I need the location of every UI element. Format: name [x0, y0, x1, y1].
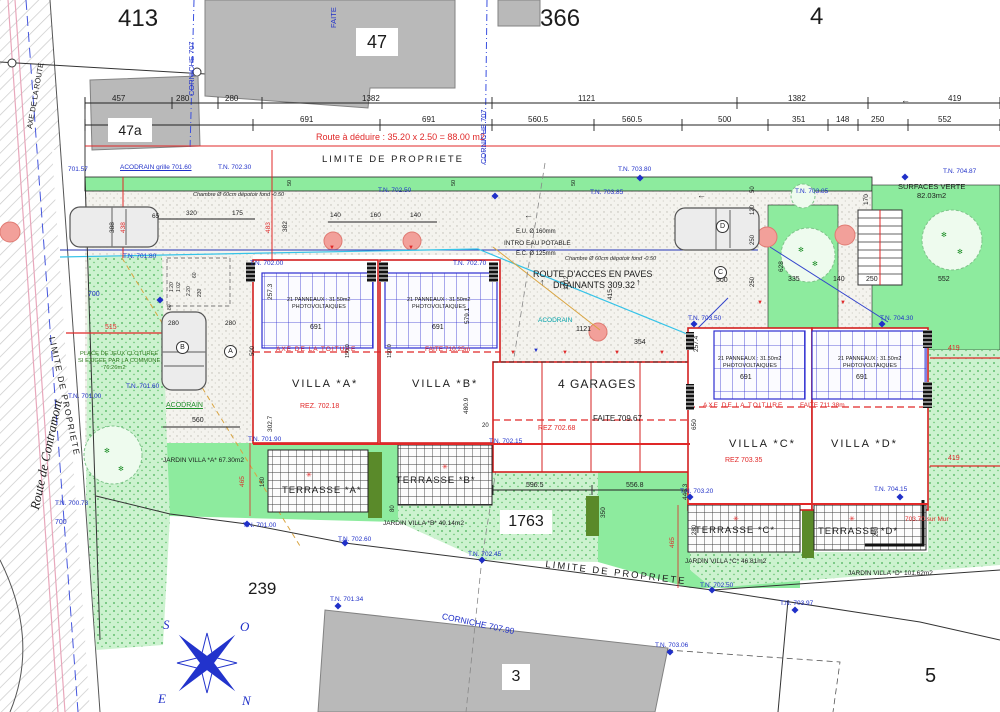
plan-label: ✻	[812, 261, 818, 268]
plan-label: 515	[105, 324, 117, 331]
plan-label: 438	[121, 222, 128, 233]
plan-label: T.N. 703.06	[655, 643, 688, 650]
plan-label: ▼	[408, 245, 414, 251]
hedge	[802, 506, 814, 558]
plan-label: ↑	[636, 278, 641, 287]
plan-label: 691	[740, 374, 752, 381]
plan-label: 382	[283, 221, 290, 232]
plan-label: 250	[750, 235, 756, 245]
plan-label: FAITE 710.25m	[425, 347, 470, 354]
plan-label: T.N. 702.45	[468, 552, 501, 559]
plan-label: T.N. 702.60	[338, 537, 371, 544]
plan-label: 21 PANNEAUX : 31.50m2	[287, 298, 350, 304]
plan-label: 1121	[576, 326, 591, 333]
plan-label: 351	[792, 116, 805, 124]
villa-d-label: VILLA *D*	[831, 439, 898, 451]
plan-label: 2.20	[187, 286, 192, 296]
plan-label: T.N. 704.30	[880, 316, 913, 323]
plan-label: T.N. 702.70	[453, 261, 486, 268]
tree	[84, 426, 142, 484]
villa-a-label: VILLA *A*	[292, 379, 358, 391]
plan-label: 354	[634, 339, 646, 346]
plan-label: PHOTOVOLTAIQUES	[292, 305, 346, 311]
parcel-413-label: 413	[118, 6, 158, 31]
plan-label: T.N. 704.87	[943, 169, 976, 176]
plan-label: T.N. 703.50	[688, 316, 721, 323]
plan-label: 150.0	[346, 344, 352, 358]
plan-label: 446.3	[683, 484, 690, 500]
hedge	[586, 496, 599, 536]
plan-label: 388	[110, 222, 117, 233]
plan-label: 703.70 sur Mur	[905, 517, 949, 524]
parcel-1763-label: 1763	[500, 510, 552, 534]
plan-label: 628	[779, 261, 786, 272]
plan-label: 419	[948, 95, 961, 103]
tree	[781, 228, 835, 282]
garages-rez: REZ 702.68	[538, 425, 575, 432]
plan-label: ▼	[840, 300, 846, 306]
plan-label: T.N. 702.50	[378, 188, 411, 195]
garages-label: 4 GARAGES	[558, 378, 636, 391]
plan-label: 50	[750, 186, 756, 193]
building-3-label: 3	[502, 664, 530, 690]
plan-label: ✻	[104, 448, 110, 455]
plan-label: E.C. Ø 125mm	[516, 251, 556, 257]
plan-label: ↑	[540, 278, 545, 287]
plan-label: 280	[176, 95, 189, 103]
plan-label: FAITE	[330, 7, 338, 28]
plan-label: 180	[260, 477, 266, 487]
plan-label: 250	[871, 116, 884, 124]
plan-label: 552	[938, 116, 951, 124]
plan-label: ←	[524, 211, 533, 220]
plan-label: AXE DE LA TOITURE	[703, 403, 783, 410]
plan-label: 691	[422, 116, 435, 124]
plan-label: T.N. 702.50	[700, 583, 733, 590]
property-limit-top: LIMITE DE PROPRIETE	[322, 155, 464, 165]
plan-label: 170	[864, 194, 871, 205]
garden-c-label: JARDIN VILLA *C* 46.81m2	[685, 559, 766, 566]
plan-label: 65	[152, 214, 159, 221]
plan-label: T.N. 701.00	[243, 523, 276, 530]
building-47-label: 47	[356, 28, 398, 56]
plan-label: ←	[697, 191, 706, 200]
plan-label: 700	[55, 519, 67, 526]
plan-label: 140	[330, 213, 341, 220]
plan-label: 280	[225, 321, 236, 328]
plan-label: 560.5	[622, 116, 642, 124]
plan-label: 21 PANNEAUX : 31.50m2	[838, 357, 901, 363]
plan-label: ✻	[118, 466, 124, 473]
plan-label: T.N. 702.15	[489, 439, 522, 446]
plan-label: ✻	[941, 232, 947, 239]
plan-label: 457	[112, 95, 125, 103]
plan-label: 320	[186, 211, 197, 218]
plan-label: Chambre Ø 60cm dépotoir fond -0.50	[193, 193, 284, 199]
plan-label: ✳	[849, 516, 855, 523]
plan-label: 419	[948, 455, 960, 462]
villa-b-label: VILLA *B*	[412, 379, 478, 391]
plan-label: CORNICHE 707	[480, 109, 488, 164]
plan-label: 160	[370, 213, 381, 220]
plan-label: T.N. 701.80	[123, 254, 156, 261]
plan-label: 691	[432, 324, 444, 331]
marker-b: B	[176, 341, 189, 354]
plan-label: 483	[266, 222, 273, 233]
plan-label: ▼	[329, 245, 335, 251]
plan-label: T.N. 700.73	[55, 501, 88, 508]
green-surface-label: SURFACES VERTE	[898, 183, 965, 191]
plan-label: 560.5	[528, 116, 548, 124]
plan-label: INTRO EAU POTABLE	[504, 241, 571, 248]
plan-label: 280	[168, 321, 179, 328]
hedge	[368, 452, 382, 518]
marker-c: C	[714, 266, 727, 279]
plan-label: ✳	[733, 516, 739, 523]
plan-label: 20	[482, 423, 489, 429]
plan-label: 257.3	[268, 284, 275, 300]
plan-label: SI EXIGEE PAR LA COMMUNE	[78, 358, 160, 364]
terrace-c-label: TERRASSE *C*	[695, 526, 775, 536]
parcel-4-label: 4	[810, 4, 823, 29]
plan-label: 140	[833, 276, 845, 283]
villa-c-rez: REZ 703.35	[725, 457, 762, 464]
plan-label: 500	[250, 346, 256, 356]
plan-label: 60	[193, 272, 198, 278]
plan-label: 250	[750, 277, 756, 287]
plan-label: E.U. Ø 160mm	[516, 229, 556, 235]
stairs	[858, 210, 902, 285]
compass-s: S	[163, 618, 170, 632]
plan-label: ▼	[533, 348, 539, 354]
plan-label: T.N. 702.30	[218, 165, 251, 172]
acodrain-label: ACODRAIN	[166, 402, 203, 409]
plan-label: T.N. 703.97	[780, 601, 813, 608]
villa-a-rez: REZ. 702.18	[300, 403, 339, 410]
villa-c-label: VILLA *C*	[729, 439, 796, 451]
plan-label: 596.5	[526, 482, 544, 489]
plan-label: 691	[310, 324, 322, 331]
plan-label: 150.0	[388, 344, 394, 358]
terrace-a	[268, 450, 368, 512]
plan-label: 556.8	[626, 482, 644, 489]
plan-label: 700	[88, 291, 100, 298]
plan-label: T.N. 702.00	[250, 261, 283, 268]
plan-label: PLACE DE JEUX CLOTUREE	[80, 351, 158, 357]
plan-label: 140	[410, 213, 421, 220]
plan-label: 350	[601, 507, 608, 518]
plan-label: 1382	[362, 95, 380, 103]
plan-label: 691	[856, 374, 868, 381]
plan-label: PHOTOVOLTAIQUES	[723, 364, 777, 370]
garden-a-label: JARDIN VILLA *A* 67.30m2	[163, 458, 244, 465]
plan-label: 21 PANNEAUX : 31.50m2	[407, 298, 470, 304]
plan-label: ▼	[659, 350, 665, 356]
plan-label: FAITE 711.38m	[800, 403, 845, 410]
plan-label: 82.03m2	[917, 192, 946, 200]
plan-label: T.N. 701.00	[68, 394, 101, 401]
plan-label: 76.26m2	[103, 365, 126, 371]
plan-label: 1012	[564, 276, 571, 290]
plan-label: 80	[390, 505, 396, 512]
parcel-5-label: 5	[925, 666, 936, 687]
plan-label: 280	[692, 525, 698, 535]
plan-label: 148	[836, 116, 849, 124]
plan-label: ✳	[306, 472, 312, 479]
plan-label: 419	[948, 345, 960, 352]
plan-label: 650	[692, 419, 699, 430]
marker-d: D	[716, 220, 729, 233]
plan-label: T.N. 703.80	[618, 167, 651, 174]
plan-label: ▼	[757, 300, 763, 306]
building-north	[498, 0, 540, 26]
terrace-a-label: TERRASSE *A*	[282, 486, 362, 496]
plan-label: CORNICHE 707	[188, 41, 196, 96]
marker-a: A	[224, 345, 237, 358]
garden-d-label: JARDIN VILLA *D* 101.62m2	[848, 571, 933, 578]
plan-label: 175	[232, 211, 243, 218]
route-deduction-note: Route à déduire : 35.20 x 2.50 = 88.00 m…	[316, 133, 485, 142]
plan-label: 50	[572, 180, 578, 186]
plan-label: T.N. 701.60	[126, 384, 159, 391]
plan-label: 1.20	[170, 282, 175, 292]
plan-label: 1382	[788, 95, 806, 103]
plan-label: 1121	[578, 95, 595, 103]
parcel-366-label: 366	[540, 6, 580, 31]
plan-label: 257.4	[694, 336, 701, 352]
plan-label: ✳	[442, 464, 448, 471]
plan-label: 552	[938, 276, 950, 283]
plan-label: ▼	[614, 350, 620, 356]
garden-b-label: JARDIN VILLA *B* 49.14m2	[383, 521, 464, 528]
compass-o: O	[240, 620, 249, 634]
plan-label: 280	[225, 95, 238, 103]
access-road-label: ROUTE D'ACCES EN PAVES	[533, 270, 652, 279]
plan-label: 579.1	[465, 308, 472, 324]
plan-label: ▼	[510, 350, 516, 356]
plan-label: 230	[198, 289, 203, 297]
parcel-239-label: 239	[248, 580, 276, 598]
plan-label: 280	[874, 527, 880, 537]
plan-label: PHOTOVOLTAIQUES	[412, 305, 466, 311]
plan-label: 250	[866, 276, 878, 283]
plan-label: 335	[788, 276, 800, 283]
plan-label: 50	[288, 180, 294, 186]
parcel-47a-label: 47a	[108, 118, 152, 142]
plan-label: ✻	[798, 247, 804, 254]
terrace-d-label: TERRASSE *D*	[818, 527, 898, 537]
plan-label: 465	[240, 476, 247, 487]
site-plan: 4133664239545728028013821121138241969169…	[0, 0, 1000, 712]
plan-label: ✻	[957, 249, 963, 256]
plan-label: T.N. 704.15	[874, 487, 907, 494]
plan-label: T.N. 701.34	[330, 597, 363, 604]
plan-label: ←	[901, 96, 910, 105]
plan-label: 302.7	[268, 416, 275, 432]
plan-label: 465	[670, 537, 677, 548]
plan-label: 120	[750, 205, 756, 215]
plan-label: 415	[608, 289, 615, 300]
terrace-b-label: TERRASSE *B*	[396, 476, 476, 486]
plan-label: PHOTOVOLTAIQUES	[843, 364, 897, 370]
plan-label: ACODRAIN	[538, 318, 572, 325]
plan-label: ▼	[562, 350, 568, 356]
plan-label: 80	[168, 304, 173, 310]
plan-label: T.N. 703.85	[590, 190, 623, 197]
tree	[922, 210, 982, 270]
plan-label: 480.9	[464, 398, 471, 414]
compass-n: N	[242, 694, 251, 708]
plan-label: FAITE 709.67	[593, 415, 642, 423]
plan-label: T.N. 701.90	[248, 437, 281, 444]
plan-label: 691	[300, 116, 313, 124]
plan-label: 50	[452, 180, 458, 186]
compass-e: E	[158, 692, 166, 706]
plan-label: 1.02	[177, 282, 182, 292]
plan-label: 560	[192, 417, 204, 424]
plan-label: ACODRAIN grille 701.60	[120, 165, 192, 172]
plan-label: Chambre Ø 60cm dépotoir fond -0.50	[565, 257, 656, 263]
plan-label: 21 PANNEAUX : 31.50m2	[718, 357, 781, 363]
plan-label: 701.57	[68, 167, 88, 174]
plan-label: T.N. 703.85	[795, 189, 828, 196]
plan-label: 500	[718, 116, 731, 124]
